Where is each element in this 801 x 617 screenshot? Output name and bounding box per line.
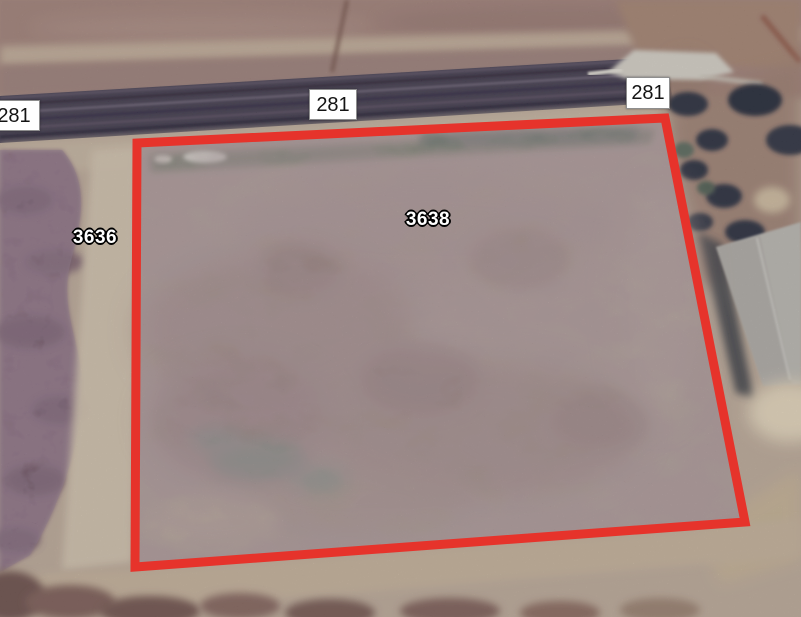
satellite-map-view[interactable]: 281 281 281 3636 3638: [0, 0, 801, 617]
route-number: 281: [631, 83, 664, 103]
route-label-281-center: 281: [309, 89, 357, 120]
route-label-281-left: 281: [0, 100, 40, 131]
satellite-imagery[interactable]: [0, 0, 801, 617]
route-number: 281: [0, 106, 31, 126]
route-number: 281: [316, 95, 349, 115]
parcel-label-3636: 3636: [64, 227, 126, 249]
route-label-281-right: 281: [626, 77, 670, 109]
parcel-label-3638: 3638: [397, 209, 459, 231]
